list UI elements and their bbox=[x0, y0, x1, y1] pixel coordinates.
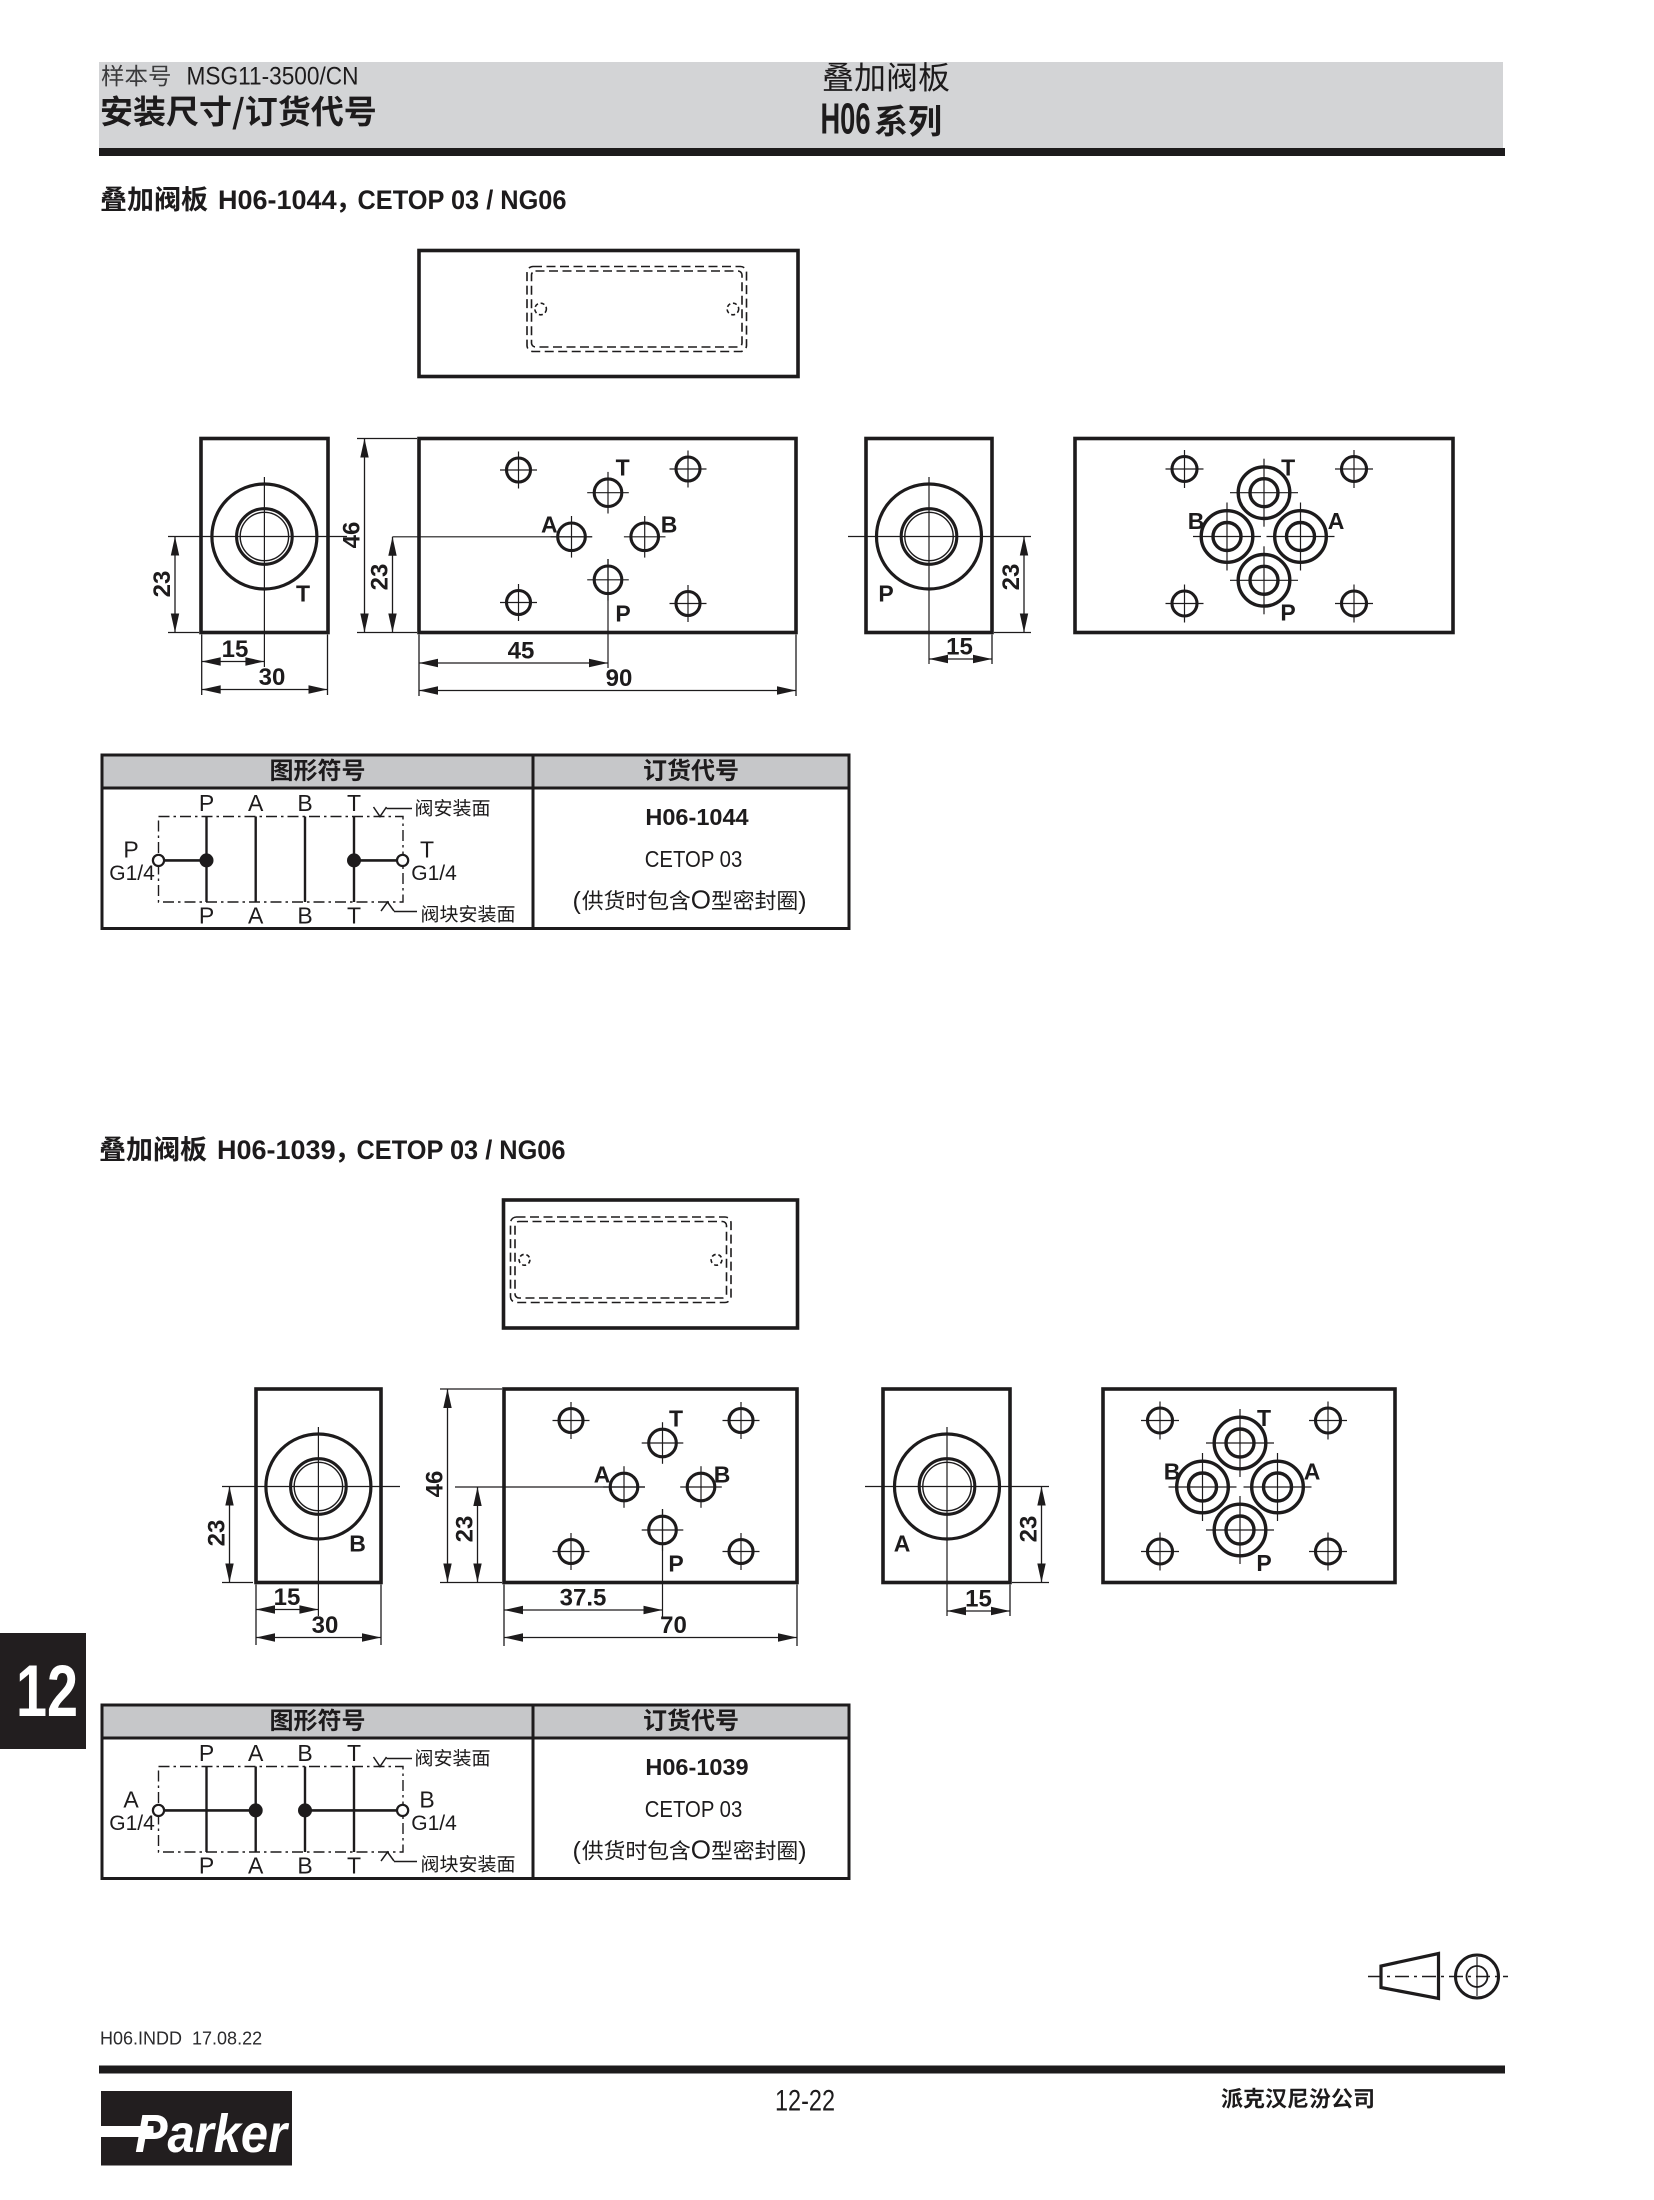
svg-text:A: A bbox=[248, 790, 264, 816]
svg-text:A: A bbox=[248, 1853, 264, 1879]
svg-text:A: A bbox=[594, 1462, 611, 1488]
svg-text:B: B bbox=[297, 1853, 312, 1879]
svg-text:H06-1039: H06-1039 bbox=[645, 1754, 748, 1780]
svg-text:23: 23 bbox=[367, 564, 394, 591]
svg-text:O: O bbox=[691, 885, 711, 915]
svg-text:P: P bbox=[199, 903, 214, 929]
svg-text:15: 15 bbox=[946, 634, 973, 661]
svg-text:15: 15 bbox=[222, 636, 249, 663]
svg-text:P: P bbox=[199, 790, 214, 816]
svg-text:12-22: 12-22 bbox=[775, 2085, 835, 2118]
svg-text:P: P bbox=[199, 1853, 214, 1879]
svg-text:23: 23 bbox=[998, 564, 1025, 591]
svg-text:P: P bbox=[615, 601, 630, 627]
svg-text:A: A bbox=[1328, 508, 1345, 534]
svg-text:CETOP 03: CETOP 03 bbox=[645, 846, 743, 872]
svg-text:70: 70 bbox=[660, 1612, 687, 1639]
svg-text:A: A bbox=[1304, 1458, 1321, 1484]
svg-text:T: T bbox=[669, 1406, 683, 1432]
svg-text:23: 23 bbox=[452, 1516, 479, 1543]
svg-text:G1/4: G1/4 bbox=[411, 862, 457, 885]
svg-text:30: 30 bbox=[312, 1612, 339, 1639]
svg-text:B: B bbox=[1188, 508, 1205, 534]
svg-text:12: 12 bbox=[16, 1651, 78, 1732]
svg-text:B: B bbox=[297, 1740, 312, 1766]
svg-text:46: 46 bbox=[422, 1471, 449, 1498]
svg-text:A: A bbox=[248, 903, 264, 929]
svg-text:23: 23 bbox=[204, 1520, 231, 1547]
svg-text:H06-1039: H06-1039 bbox=[217, 1135, 336, 1165]
svg-text:T: T bbox=[347, 903, 361, 929]
svg-text:B: B bbox=[297, 790, 312, 816]
svg-text:T: T bbox=[296, 581, 310, 607]
svg-text:A: A bbox=[541, 511, 558, 537]
svg-text:B: B bbox=[419, 1787, 434, 1813]
svg-text:B: B bbox=[714, 1462, 731, 1488]
svg-text:CETOP 03 / NG06: CETOP 03 / NG06 bbox=[357, 1135, 566, 1165]
svg-text:P: P bbox=[199, 1740, 214, 1766]
svg-text:B: B bbox=[1164, 1458, 1181, 1484]
svg-text:23: 23 bbox=[149, 571, 176, 598]
svg-text:(: ( bbox=[573, 887, 582, 915]
svg-text:P: P bbox=[123, 837, 138, 863]
svg-text:G1/4: G1/4 bbox=[109, 862, 155, 885]
svg-text:H06-1044: H06-1044 bbox=[645, 804, 748, 830]
svg-text:): ) bbox=[798, 887, 806, 915]
svg-text:B: B bbox=[661, 511, 678, 537]
svg-text:O: O bbox=[691, 1835, 711, 1865]
svg-text:G1/4: G1/4 bbox=[411, 1812, 457, 1835]
svg-text:P: P bbox=[668, 1551, 683, 1577]
svg-text:90: 90 bbox=[606, 665, 633, 692]
svg-text:A: A bbox=[248, 1740, 264, 1766]
svg-text:T: T bbox=[347, 1853, 361, 1879]
svg-text:46: 46 bbox=[339, 522, 366, 549]
svg-text:(: ( bbox=[573, 1837, 582, 1865]
svg-text:H06-1044: H06-1044 bbox=[218, 185, 337, 215]
svg-text:T: T bbox=[420, 837, 434, 863]
svg-text:B: B bbox=[297, 903, 312, 929]
svg-text:A: A bbox=[894, 1531, 911, 1557]
svg-text:T: T bbox=[347, 1740, 361, 1766]
svg-text:P: P bbox=[1256, 1550, 1271, 1576]
svg-text:T: T bbox=[616, 455, 630, 481]
svg-text:15: 15 bbox=[965, 1586, 992, 1613]
svg-text:Parker: Parker bbox=[135, 2104, 290, 2164]
svg-text:G1/4: G1/4 bbox=[109, 1812, 155, 1835]
svg-text:30: 30 bbox=[259, 664, 286, 691]
svg-text:T: T bbox=[1281, 455, 1295, 481]
svg-text:H06.INDD 17.08.22: H06.INDD 17.08.22 bbox=[100, 2029, 262, 2049]
svg-text:37.5: 37.5 bbox=[560, 1585, 607, 1612]
svg-text:H06: H06 bbox=[821, 95, 871, 144]
svg-text:15: 15 bbox=[274, 1584, 301, 1611]
svg-text:): ) bbox=[798, 1837, 806, 1865]
svg-text:T: T bbox=[347, 790, 361, 816]
svg-text:T: T bbox=[1257, 1405, 1271, 1431]
svg-text:A: A bbox=[123, 1787, 139, 1813]
svg-text:45: 45 bbox=[508, 638, 535, 665]
svg-text:P: P bbox=[878, 581, 893, 607]
svg-text:23: 23 bbox=[1016, 1516, 1043, 1543]
svg-text:MSG11-3500/CN: MSG11-3500/CN bbox=[187, 63, 359, 91]
svg-text:B: B bbox=[349, 1531, 366, 1557]
svg-text:P: P bbox=[1280, 599, 1295, 625]
svg-text:CETOP 03 / NG06: CETOP 03 / NG06 bbox=[358, 185, 567, 215]
svg-text:CETOP 03: CETOP 03 bbox=[645, 1796, 743, 1822]
